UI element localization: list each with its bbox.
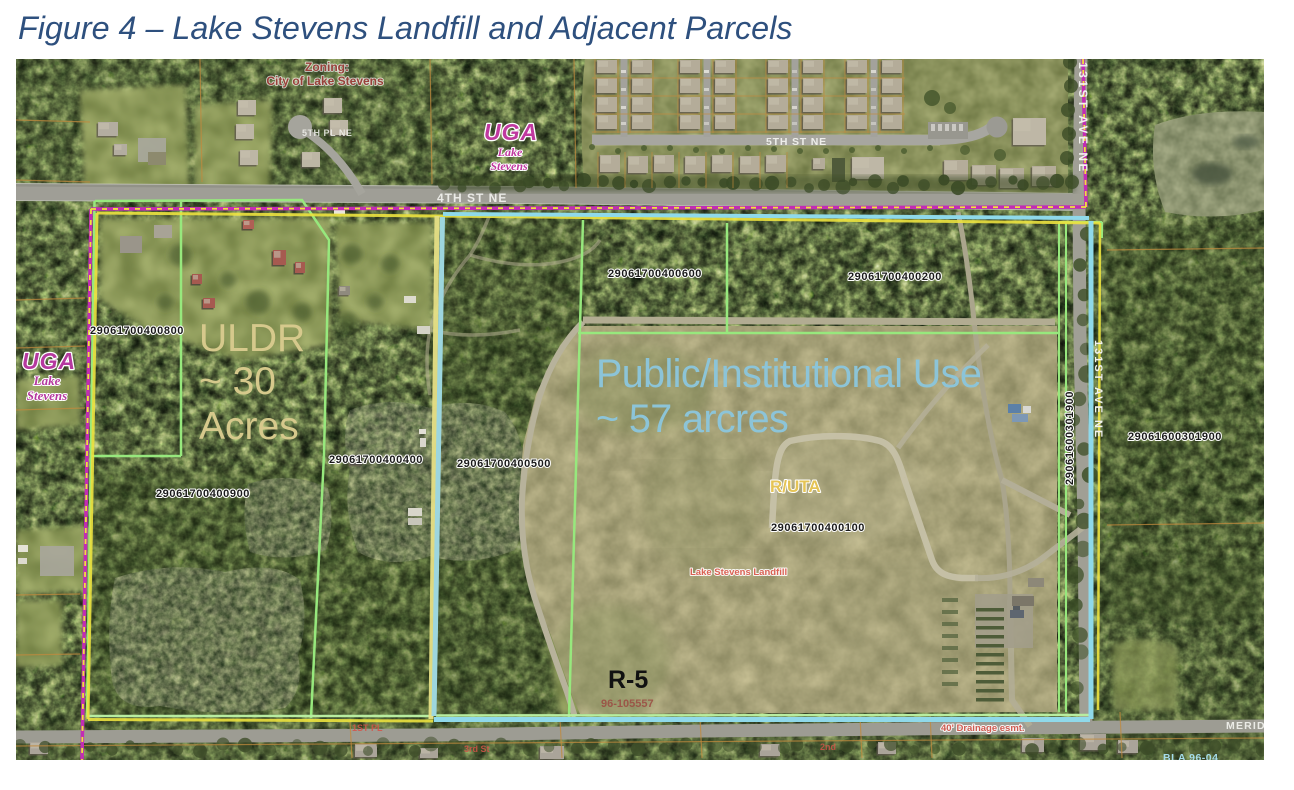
svg-text:29061600301900: 29061600301900	[1064, 391, 1076, 485]
svg-text:Public/Institutional Use: Public/Institutional Use	[596, 352, 981, 396]
svg-text:29061700400900: 29061700400900	[156, 488, 250, 500]
svg-text:29061700400100: 29061700400100	[771, 522, 865, 534]
svg-text:BLA 96-04: BLA 96-04	[1163, 752, 1218, 764]
svg-text:29061700400500: 29061700400500	[457, 458, 551, 470]
svg-text:R/UTA: R/UTA	[770, 477, 821, 496]
svg-text:Acres: Acres	[199, 405, 299, 448]
svg-text:40' Drainage esmt.: 40' Drainage esmt.	[941, 723, 1025, 734]
svg-text:5TH ST NE: 5TH ST NE	[766, 136, 827, 148]
svg-text:131ST AVE NE: 131ST AVE NE	[1092, 340, 1104, 439]
svg-text:96-105557: 96-105557	[601, 698, 654, 710]
svg-text:29061700400200: 29061700400200	[848, 271, 942, 283]
svg-text:~ 57 arcres: ~ 57 arcres	[596, 397, 788, 441]
svg-text:29061700400800: 29061700400800	[90, 325, 184, 337]
svg-text:3rd St: 3rd St	[464, 744, 490, 754]
svg-text:Lake Stevens Landfill: Lake Stevens Landfill	[690, 567, 787, 578]
svg-text:4TH ST NE: 4TH ST NE	[437, 191, 507, 205]
svg-text:5TH PL NE: 5TH PL NE	[302, 128, 352, 138]
svg-text:Lake: Lake	[497, 145, 523, 159]
svg-text:2nd: 2nd	[820, 742, 836, 752]
svg-text:Stevens: Stevens	[27, 388, 67, 403]
svg-text:Zoning:: Zoning:	[305, 60, 349, 74]
svg-text:~ 30: ~ 30	[199, 360, 276, 403]
svg-text:UGA: UGA	[22, 348, 76, 374]
svg-text:29061600301900: 29061600301900	[1128, 431, 1222, 443]
svg-text:R-5: R-5	[608, 666, 648, 694]
svg-text:29061700400600: 29061700400600	[608, 268, 702, 280]
svg-text:29061700400400: 29061700400400	[329, 454, 423, 466]
svg-text:MERIDIAN: MERIDIAN	[1226, 720, 1288, 732]
svg-text:Lake: Lake	[33, 373, 61, 388]
svg-text:UGA: UGA	[484, 119, 538, 145]
svg-text:1ST PL: 1ST PL	[352, 723, 383, 733]
svg-text:Stevens: Stevens	[490, 159, 528, 173]
svg-text:City of Lake Stevens: City of Lake Stevens	[266, 74, 384, 88]
svg-text:131ST AVE NE: 131ST AVE NE	[1076, 62, 1090, 174]
svg-text:ULDR: ULDR	[199, 317, 305, 360]
